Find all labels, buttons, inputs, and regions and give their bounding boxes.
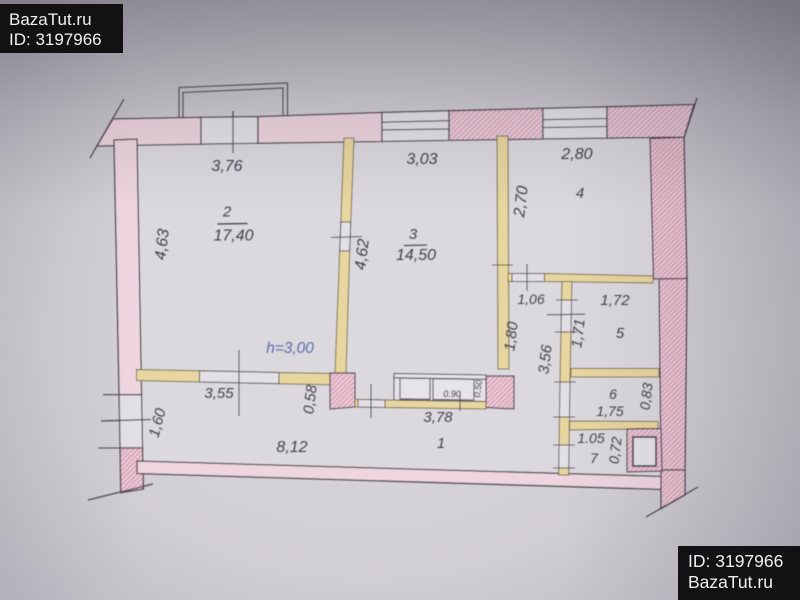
svg-text:1,06: 1,06 (517, 291, 544, 307)
svg-text:3,55: 3,55 (204, 385, 234, 402)
svg-text:3,78: 3,78 (423, 409, 453, 426)
svg-text:1: 1 (437, 435, 445, 452)
svg-text:BazaTut.ru: BazaTut.ru (9, 10, 92, 29)
svg-text:BazaTut.ru: BazaTut.ru (688, 572, 773, 592)
svg-text:17,40: 17,40 (213, 228, 253, 245)
svg-text:0,58: 0,58 (300, 383, 321, 415)
svg-text:3: 3 (409, 226, 418, 243)
svg-text:h=3,00: h=3,00 (266, 340, 314, 357)
svg-text:8,12: 8,12 (276, 439, 307, 456)
svg-text:3,56: 3,56 (535, 343, 556, 375)
svg-text:ID: 3197966: ID: 3197966 (9, 30, 102, 49)
svg-text:14,50: 14,50 (396, 247, 436, 264)
svg-text:0.90: 0.90 (443, 389, 461, 399)
svg-text:1,80: 1,80 (501, 320, 522, 352)
svg-text:0,50: 0,50 (472, 379, 484, 398)
svg-text:ID: 3197966: ID: 3197966 (688, 551, 783, 571)
